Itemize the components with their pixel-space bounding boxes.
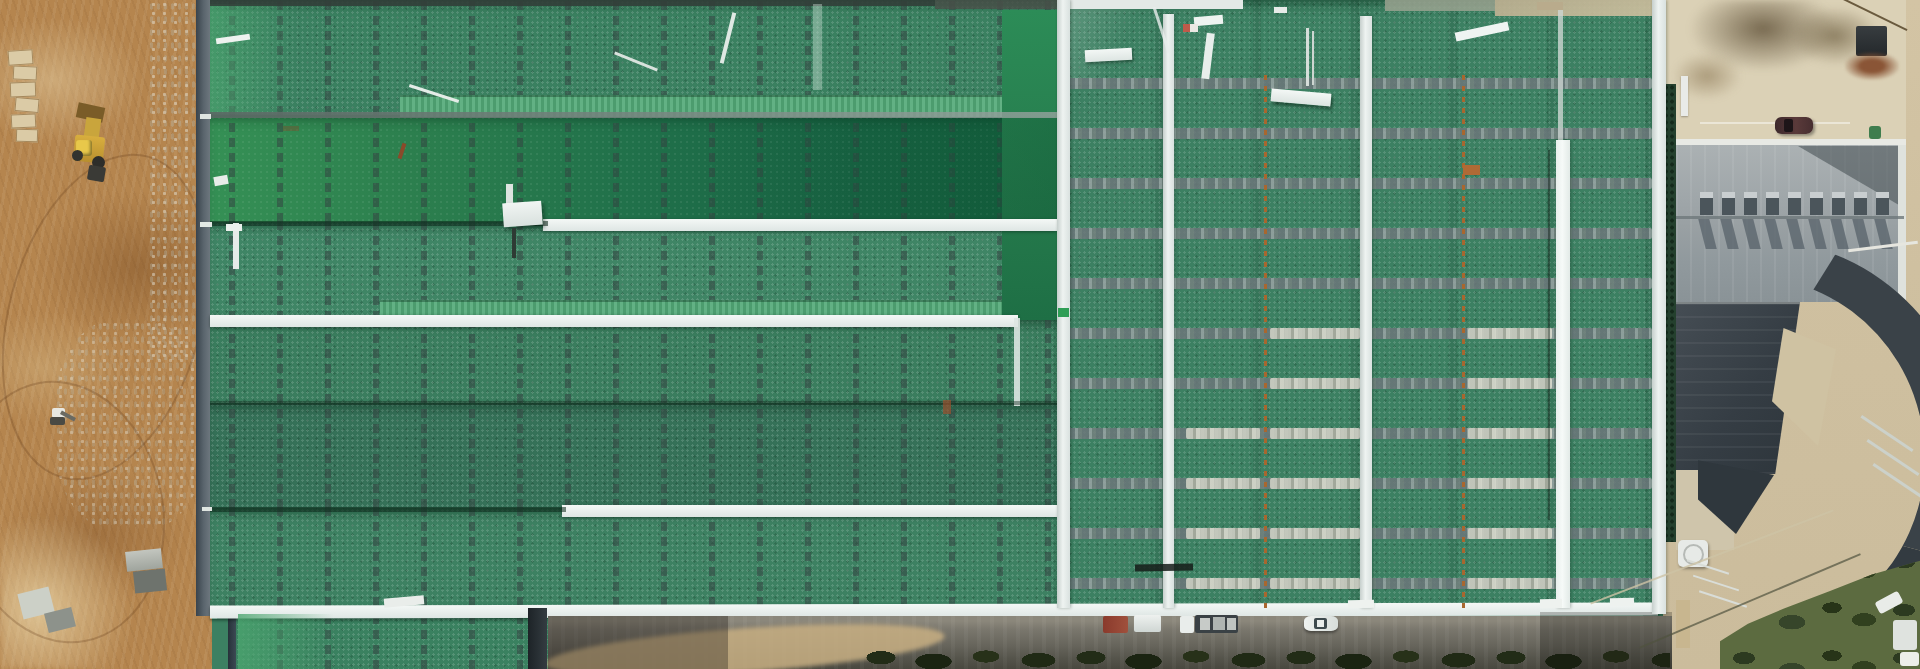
rust-mark <box>943 400 951 414</box>
vehicle-white <box>1893 620 1917 650</box>
cargo-box <box>1200 618 1210 630</box>
edge-flashing <box>1540 599 1562 608</box>
skylight-vent <box>1854 192 1867 215</box>
bin-green <box>1869 126 1881 139</box>
stone-block <box>11 113 37 128</box>
utility-wire <box>1590 509 1833 604</box>
annex-debris <box>384 595 425 607</box>
skylight-vent <box>1810 192 1823 215</box>
skylight-vent <box>1832 192 1845 215</box>
vent-shadow <box>1808 219 1826 249</box>
stick-debris <box>614 51 658 71</box>
container-red <box>1103 616 1128 633</box>
vehicle-white <box>1874 591 1903 615</box>
skylight-vent <box>1722 192 1735 215</box>
plank-debris <box>1271 88 1332 106</box>
edge-bit <box>200 114 211 119</box>
stair-line <box>1866 439 1919 476</box>
edge-bit <box>226 224 242 231</box>
skylight-vent <box>1876 192 1889 215</box>
plank-vertical <box>1201 33 1215 80</box>
truck-white <box>1134 615 1161 632</box>
loader-rear <box>87 165 106 183</box>
skylight-vent <box>1700 192 1713 215</box>
vent-shadow <box>1830 219 1848 249</box>
rooftop-unit <box>502 201 543 228</box>
edge-bit <box>200 222 212 227</box>
smudge <box>283 126 299 131</box>
stone-block <box>10 82 37 98</box>
truck-cab-white <box>1180 616 1194 633</box>
objects-layer <box>0 0 1920 669</box>
stone-block <box>16 129 38 143</box>
debris-small <box>1274 7 1287 13</box>
rust-mark <box>398 143 407 159</box>
concrete-block <box>133 568 167 593</box>
aerial-construction-site-photo <box>0 0 1920 669</box>
edge-flashing <box>1348 600 1374 608</box>
plank-debris <box>1455 21 1510 41</box>
car-white-roof <box>1317 620 1324 627</box>
mini-excavator-tread <box>50 417 65 425</box>
vent-shadow <box>1764 219 1782 249</box>
vent-shadow <box>1852 219 1870 249</box>
utility-wire <box>1639 553 1861 649</box>
pole-debris <box>1306 28 1309 86</box>
stone-block <box>8 49 34 66</box>
pole-debris <box>1312 31 1314 85</box>
rooftop-unit-leg <box>512 228 516 258</box>
cargo-box <box>1227 618 1236 630</box>
loader-wheel <box>72 150 83 161</box>
vehicle-white <box>1900 652 1919 666</box>
label-red-white <box>1183 24 1198 32</box>
railing <box>1693 575 1739 592</box>
plank-debris <box>1085 48 1133 62</box>
rubble-pile <box>1845 52 1899 80</box>
plank-debris <box>1194 15 1224 26</box>
vent-shadow <box>1742 219 1760 249</box>
edge-debris <box>213 175 228 186</box>
debris-small <box>1537 2 1563 10</box>
edge-flashing <box>1610 598 1634 606</box>
plank-debris <box>216 34 251 45</box>
stick-debris <box>720 12 736 63</box>
car-dark <box>1775 117 1813 134</box>
stair-line <box>1860 415 1913 452</box>
skylight-vent <box>1788 192 1801 215</box>
edge-bit <box>202 507 212 511</box>
cargo-box <box>1213 617 1225 630</box>
skylight-vent <box>1744 192 1757 215</box>
downspout-pipe <box>528 608 547 669</box>
pole-white <box>1681 76 1688 116</box>
stone-block <box>13 65 38 80</box>
skylight-vent <box>1766 192 1779 215</box>
vent-shadow <box>1720 219 1738 249</box>
stone-block <box>14 97 39 113</box>
vent-shadow <box>1786 219 1804 249</box>
vent-shadow <box>1698 219 1716 249</box>
stick-debris <box>409 84 459 103</box>
orange-patch <box>1463 165 1480 175</box>
car-dark-glass <box>1784 119 1793 132</box>
railing <box>1687 559 1729 574</box>
